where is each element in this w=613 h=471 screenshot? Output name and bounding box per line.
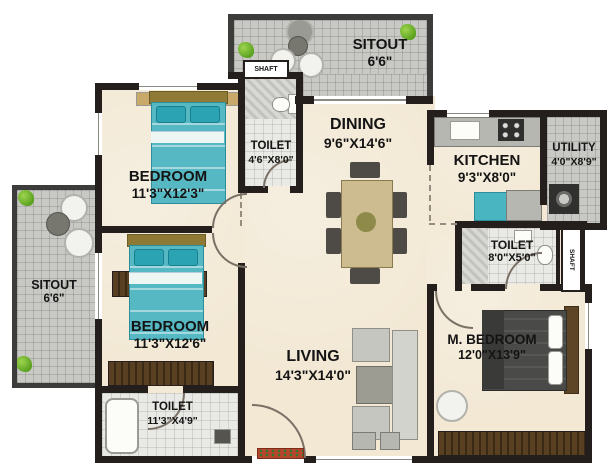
- wall: [12, 185, 95, 190]
- room-name: DINING: [302, 116, 414, 135]
- pillow: [134, 249, 164, 266]
- room-label-sitout-top: SITOUT 6'6": [330, 36, 430, 70]
- room-name: KITCHEN: [434, 152, 540, 170]
- room-name: UTILITY: [544, 142, 604, 156]
- wardrobe: [108, 361, 214, 386]
- open-boundary: [429, 223, 457, 225]
- wall: [238, 263, 245, 463]
- plant-icon: [18, 190, 34, 206]
- room-name: TOILET: [120, 401, 225, 415]
- room-label-living: LIVING 14'3"X14'0": [258, 348, 368, 383]
- room-name: BEDROOM: [105, 168, 231, 186]
- washbasin: [214, 429, 231, 444]
- room-dims: 6'6": [330, 54, 430, 70]
- room-name: SITOUT: [14, 278, 94, 293]
- wardrobe: [438, 431, 588, 456]
- room-label-toilet1: TOILET 4'6"X8'0": [240, 140, 302, 166]
- window: [585, 302, 592, 350]
- room-label-toilet3: TOILET 11'3"X4'9": [120, 401, 225, 427]
- room-dims: 11'3"X12'6": [105, 336, 235, 352]
- room-label-bedroom1: BEDROOM 11'3"X12'3": [105, 168, 231, 202]
- dining-chair: [350, 162, 380, 178]
- sofa: [392, 330, 418, 440]
- room-dims: 11'3"X12'3": [105, 186, 231, 202]
- wall: [455, 221, 462, 291]
- window: [446, 110, 490, 117]
- room-label-sitout-left: SITOUT 6'6": [14, 278, 94, 306]
- room-label-m-bedroom: M. BEDROOM 12'0"X13'9": [432, 332, 552, 363]
- room-dims: 9'6"X14'6": [302, 135, 414, 152]
- patio-chair: [64, 228, 94, 258]
- kitchen-sink: [450, 121, 480, 140]
- dining-centerpiece: [356, 212, 376, 232]
- room-name: TOILET: [468, 238, 556, 252]
- pillow: [168, 249, 198, 266]
- dining-chair: [326, 228, 341, 254]
- wall: [95, 226, 212, 233]
- room-dims: 9'3"X8'0": [434, 170, 540, 186]
- room-name: TOILET: [240, 140, 302, 154]
- wall: [12, 383, 95, 388]
- dining-chair: [350, 268, 380, 284]
- plant-icon: [16, 356, 32, 372]
- pillow: [190, 106, 220, 123]
- room-dims: 14'3"X14'0": [258, 367, 368, 384]
- floor-plan: SHAFT SHAFT SITOUT 6'6" BEDROOM 11'3"X12…: [0, 0, 613, 471]
- wall: [403, 96, 433, 104]
- shaft-label: SHAFT: [254, 66, 277, 73]
- room-dims: 4'0"X8'9": [544, 156, 604, 168]
- wall: [238, 79, 245, 193]
- kitchen-platform: [474, 192, 508, 221]
- room-dims: 8'0"X5'0": [468, 252, 556, 265]
- room-name: M. BEDROOM: [432, 332, 552, 348]
- plant-icon: [238, 42, 254, 58]
- wall: [228, 14, 433, 20]
- shaft-right: SHAFT: [561, 228, 582, 292]
- room-dims: 6'6": [14, 293, 94, 307]
- room-label-utility: UTILITY 4'0"X8'9": [544, 142, 604, 168]
- shaft-top: SHAFT: [243, 60, 289, 79]
- tv-unit: [352, 432, 376, 450]
- pillow: [156, 106, 186, 123]
- washing-machine: [549, 184, 579, 214]
- wall: [556, 228, 560, 288]
- room-dims: 4'6"X8'0": [240, 154, 302, 166]
- bedroom-chair: [436, 390, 468, 422]
- wall: [455, 221, 587, 228]
- patio-table: [46, 212, 70, 236]
- doormat: [257, 448, 304, 459]
- wall: [95, 386, 148, 393]
- room-name: LIVING: [258, 348, 368, 367]
- wall: [600, 110, 607, 230]
- room-label-bedroom2: BEDROOM 11'3"X12'6": [105, 318, 235, 352]
- window: [95, 112, 102, 156]
- toilet-wc: [272, 97, 290, 112]
- open-boundary: [429, 165, 431, 221]
- wall: [183, 386, 245, 393]
- room-label-kitchen: KITCHEN 9'3"X8'0": [434, 152, 540, 186]
- shaft-label: SHAFT: [568, 249, 575, 271]
- dining-chair: [392, 228, 407, 254]
- room-dims: 12'0"X13'9": [432, 348, 552, 363]
- room-label-toilet2: TOILET 8'0"X5'0": [468, 238, 556, 265]
- room-name: BEDROOM: [105, 318, 235, 336]
- tv-unit: [380, 432, 400, 450]
- exterior-notch: [585, 230, 595, 284]
- wall: [427, 110, 434, 165]
- sliding-window: [95, 252, 102, 320]
- room-name: SITOUT: [330, 36, 430, 54]
- window: [315, 456, 413, 463]
- wall: [427, 284, 434, 463]
- kitchen-counter: [506, 190, 542, 221]
- stove: [498, 119, 524, 141]
- wall: [228, 14, 234, 79]
- room-dims: 11'3"X4'9": [120, 415, 225, 427]
- sliding-door: [313, 96, 407, 104]
- wall: [471, 284, 505, 291]
- dining-chair: [326, 192, 341, 218]
- bed-sheet-band: [129, 272, 202, 284]
- bed-sheet-band: [151, 131, 224, 143]
- room-label-dining: DINING 9'6"X14'6": [302, 116, 414, 151]
- window: [138, 83, 198, 90]
- dining-chair: [392, 192, 407, 218]
